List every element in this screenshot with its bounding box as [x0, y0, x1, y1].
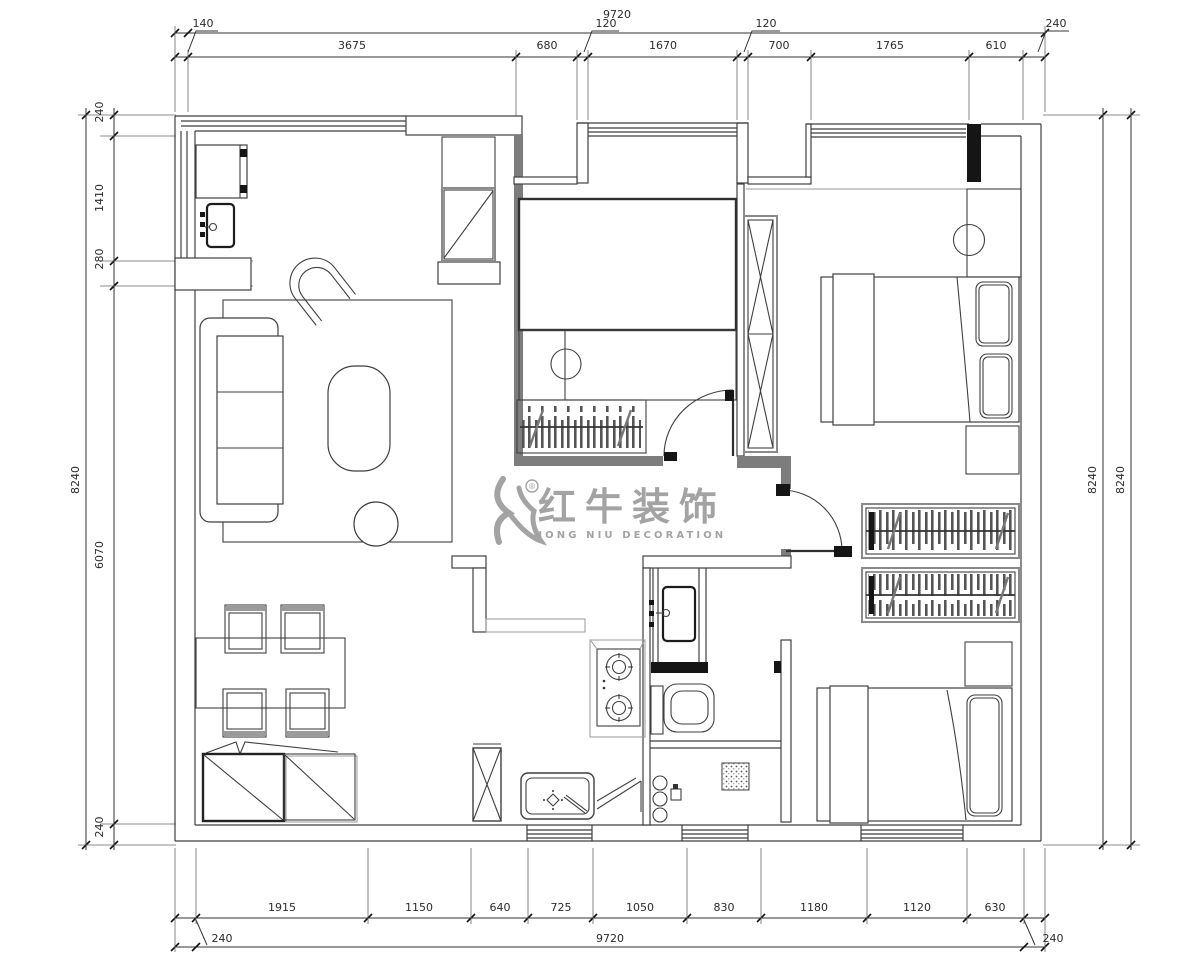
floor-plan-page: 9720 140 120 120 240 3675 680 1670 700 1…	[0, 0, 1200, 960]
brand-name-en: HONG NIU DECORATION	[534, 530, 727, 541]
side-table	[551, 349, 581, 379]
dim-top-seg-5: 610	[986, 39, 1007, 52]
room-kitchen	[473, 640, 645, 821]
dim-top-seg-4: 1765	[876, 39, 904, 52]
floor-drain	[722, 763, 749, 790]
dim-bot-seg-8: 630	[985, 901, 1006, 914]
dim-top-seg-0: 3675	[338, 39, 366, 52]
dim-left-seg-4: 240	[93, 817, 106, 838]
kitchen-sink	[521, 773, 594, 819]
dim-bot-offset-0: 240	[212, 932, 233, 945]
dim-right-inner: 8240	[1114, 466, 1127, 494]
laundry-cabinet	[196, 145, 247, 198]
clothes-rack	[517, 400, 646, 453]
dim-bot-seg-0: 1915	[268, 901, 296, 914]
wardrobe-rack-a	[862, 504, 1019, 558]
dim-bot-seg-5: 830	[714, 901, 735, 914]
dim-bot-seg-6: 1180	[800, 901, 828, 914]
dining-chair	[286, 689, 329, 737]
door-hall	[776, 484, 852, 557]
brand-name-cn: 红牛装饰	[538, 485, 726, 529]
wardrobe-column	[744, 216, 777, 452]
dining-chair	[225, 605, 266, 653]
watermark: ® 红牛装饰 HONG NIU DECORATION	[497, 479, 726, 542]
wall-stub-entry	[438, 262, 500, 284]
toilet	[651, 684, 714, 734]
dim-top-seg-1: 680	[537, 39, 558, 52]
dim-right-outer: 8240	[1086, 466, 1099, 494]
dim-left-overall: 8240	[69, 466, 82, 494]
dim-top-seg-2: 1670	[649, 39, 677, 52]
dim-top-offset-2: 120	[756, 17, 777, 30]
bottom-windows	[527, 825, 963, 841]
dim-top-offset-0: 140	[193, 17, 214, 30]
dim-left-seg-3: 6070	[93, 541, 106, 569]
dim-bot-seg-2: 640	[490, 901, 511, 914]
door-bedroom2	[664, 390, 734, 461]
wardrobe-rack-b	[862, 568, 1019, 622]
room-master	[776, 225, 1019, 559]
hall-cabinet	[442, 137, 495, 261]
dim-bot-overall: 9720	[596, 932, 624, 945]
shower-fittings	[653, 776, 681, 822]
dim-left-seg-1: 1410	[93, 184, 106, 212]
ceiling-lamp	[954, 225, 985, 256]
dim-bot-seg-4: 1050	[626, 901, 654, 914]
wash-basin	[200, 204, 234, 247]
wall-pier-solid	[967, 124, 981, 182]
kitchen-tall-cabinet	[473, 744, 501, 821]
nightstand	[966, 426, 1019, 474]
dim-top-seg-3: 700	[769, 39, 790, 52]
gas-stove	[591, 641, 644, 726]
dim-bot-seg-7: 1120	[903, 901, 931, 914]
tatami-bed	[519, 199, 736, 330]
armchair	[280, 248, 356, 325]
master-bed	[821, 274, 1019, 425]
storage-cabinet-1	[203, 754, 284, 821]
dimension-right: 8240 8240	[1043, 108, 1140, 850]
dimension-bottom: 1915 1150 640 725 1050 830 1180 1120 630…	[171, 848, 1064, 952]
dim-top-offset-1: 120	[596, 17, 617, 30]
dining-chair	[223, 689, 266, 737]
room-dining	[196, 605, 357, 822]
sofa	[200, 318, 283, 522]
dim-bot-seg-1: 1150	[405, 901, 433, 914]
dining-chair	[281, 605, 324, 653]
registered-mark: ®	[528, 482, 536, 491]
room-bedroom3	[817, 568, 1019, 823]
master-closet	[967, 189, 1021, 277]
bed-3	[817, 686, 1012, 823]
cabinet-flap	[206, 742, 338, 754]
storage-cabinet-2	[284, 754, 357, 822]
floor-plan-drawing: 9720 140 120 120 240 3675 680 1670 700 1…	[0, 0, 1200, 960]
dim-left-seg-0: 240	[93, 102, 106, 123]
nightstand	[965, 642, 1012, 686]
room-living	[196, 137, 495, 546]
dim-top-offset-3: 240	[1046, 17, 1067, 30]
dining-table	[196, 638, 345, 708]
dimension-top: 9720 140 120 120 240 3675 680 1670 700 1…	[171, 8, 1069, 130]
dim-bot-seg-3: 725	[551, 901, 572, 914]
dim-left-seg-2: 280	[93, 249, 106, 270]
coffee-table	[328, 366, 390, 471]
bathroom-vanity	[649, 587, 695, 641]
stool	[354, 502, 398, 546]
dim-bot-offset-1: 240	[1043, 932, 1064, 945]
wall-pier-280	[175, 258, 251, 290]
